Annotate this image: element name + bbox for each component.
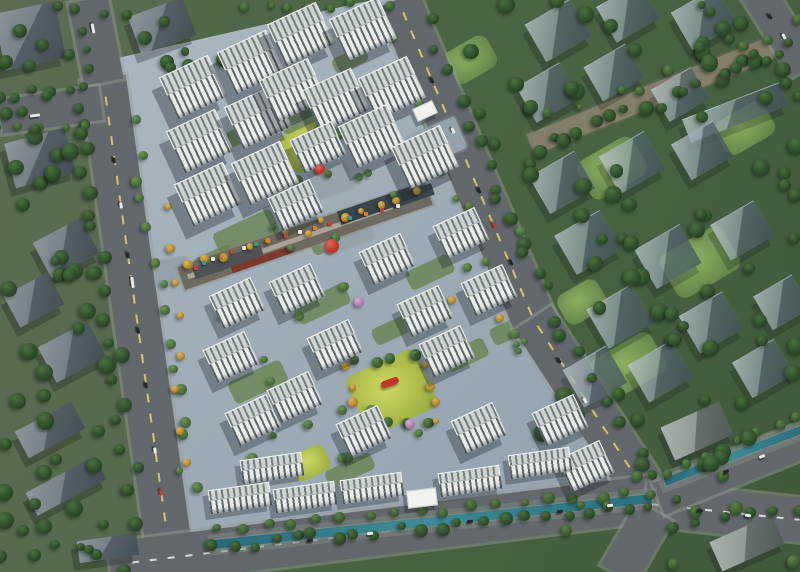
tree-dark (334, 532, 346, 544)
tree-dark (66, 500, 83, 517)
tree-dark (17, 198, 30, 211)
tree-dark (500, 512, 513, 525)
tree-dark (788, 137, 800, 155)
tree-dark (100, 285, 111, 296)
tree-dark (779, 179, 791, 191)
car (607, 503, 613, 507)
market-stall (266, 239, 270, 243)
tree-dark (430, 45, 438, 53)
market-stall (254, 242, 258, 246)
tree-dark (74, 103, 84, 113)
tree-dark (657, 103, 667, 113)
tree-dark (0, 107, 13, 120)
tree-dark (37, 39, 49, 51)
tree-dark (551, 0, 564, 8)
tree-site (515, 348, 521, 354)
tree-dark (700, 395, 710, 405)
tree-mid (763, 35, 773, 45)
tree-dark (98, 356, 116, 374)
tree-dark (18, 525, 29, 536)
tree-dark (34, 176, 48, 190)
tree-yellow (348, 397, 357, 406)
tree-mid (646, 490, 656, 500)
tree-dark (458, 95, 472, 109)
tree-dark (648, 470, 657, 479)
tree-dark (476, 135, 487, 146)
tree-dark (29, 549, 41, 561)
market-stall (211, 257, 215, 261)
tree-dark (30, 124, 41, 135)
tree-dark (668, 333, 682, 347)
tree-dark (524, 100, 538, 114)
tree-dark (428, 13, 439, 24)
tree-dark (775, 50, 784, 59)
tree-dark (749, 49, 759, 59)
tree-dark (570, 127, 583, 140)
tree-dark (623, 269, 640, 286)
tree-dark (762, 56, 772, 66)
tree-site (260, 356, 268, 364)
tree-dark (701, 54, 719, 72)
context-building (732, 339, 794, 399)
tree-dark (794, 505, 800, 517)
car (307, 538, 313, 542)
tree-site (169, 365, 178, 374)
tree-yellow (183, 459, 191, 467)
tree-yellow (247, 243, 253, 249)
tree-site (339, 282, 349, 292)
tree-dark (37, 412, 54, 429)
tree-dark (20, 343, 37, 360)
market-stall (284, 234, 288, 238)
tree-dark (632, 413, 646, 427)
tree-site (338, 405, 348, 415)
tree-dark (129, 517, 143, 531)
tree-dark (614, 416, 626, 428)
tree-dark (97, 313, 110, 326)
tree-dark (517, 247, 528, 258)
tree-dark (464, 121, 475, 132)
tree-dark (610, 164, 624, 178)
car (697, 508, 703, 512)
tree-dark (578, 6, 594, 22)
tree-dark (789, 233, 800, 244)
tree-mid (730, 501, 744, 515)
tree-dark (785, 365, 800, 381)
tree-site (132, 115, 140, 123)
tree-dark (629, 43, 643, 57)
tree-mid (63, 124, 70, 131)
market-stall (364, 212, 368, 216)
tree-dark (593, 301, 606, 314)
red-sphere-sculpture (315, 164, 325, 174)
tree-site (294, 311, 304, 321)
tree-mid (682, 459, 692, 469)
tree-mid (793, 14, 800, 25)
tree-dark (443, 64, 454, 75)
market-stall (328, 222, 332, 226)
tree-dark (673, 495, 682, 504)
car (745, 513, 751, 517)
tree-mid (410, 349, 421, 360)
tree-dark (93, 425, 105, 437)
tree-dark (73, 322, 85, 334)
car (367, 531, 373, 535)
tree-mid (269, 2, 276, 9)
tree-dark (541, 511, 551, 521)
tree-dark (54, 1, 63, 10)
tree-dark (753, 159, 770, 176)
tree-mid (334, 512, 345, 523)
market-stall (242, 246, 246, 250)
tree-dark (205, 539, 216, 550)
tree-mid (240, 2, 250, 12)
tree-dark (75, 127, 88, 140)
tree-dark (565, 81, 579, 95)
tree-dark (788, 337, 800, 355)
tree-dark (757, 335, 768, 346)
tree-dark (13, 24, 27, 38)
tree-dark (667, 522, 679, 534)
tree-dark (498, 0, 514, 13)
tree-dark (479, 516, 489, 526)
tree-yellow (172, 279, 179, 286)
tree-mid (543, 492, 555, 504)
tree-site (131, 176, 142, 187)
tree-dark (294, 530, 304, 540)
tree-site (270, 432, 277, 439)
tree-dark (181, 47, 190, 56)
market-stall (194, 266, 198, 270)
tree-dark (624, 235, 640, 251)
tree-dark (603, 109, 616, 122)
tree-mid (738, 41, 749, 52)
tree-dark (605, 186, 622, 203)
tree-mid (522, 499, 529, 506)
tree-mid (311, 514, 321, 524)
tree-yellow (433, 418, 439, 424)
tree-dark (644, 502, 652, 510)
car (557, 509, 563, 513)
tree-dark (118, 398, 132, 412)
tree-dark (623, 198, 636, 211)
tree-yellow (305, 230, 312, 237)
tree-dark (463, 44, 478, 59)
market-stall (348, 216, 352, 220)
tree-dark (553, 329, 566, 342)
market-stall (396, 204, 400, 208)
tree-site (482, 257, 491, 266)
tree-dark (475, 108, 486, 119)
tree-site (521, 338, 527, 344)
tree-dark (79, 303, 95, 319)
tree-dark (736, 396, 751, 411)
tree-dark (730, 62, 742, 74)
tree-dark (574, 346, 585, 357)
tree-site (161, 280, 169, 288)
tree-dark (51, 256, 61, 266)
tree-yellow (166, 244, 175, 253)
tree-dark (584, 508, 594, 518)
tree-site (338, 453, 348, 463)
tree-mid (791, 412, 800, 422)
tree-dark (794, 91, 800, 101)
tree-mid (620, 487, 629, 496)
tree-dark (754, 314, 767, 327)
tree-dark (781, 77, 792, 88)
tree-mid (561, 525, 572, 536)
car (467, 519, 473, 523)
market-stall (298, 230, 302, 234)
tree-mid (491, 499, 500, 508)
tree-dark (87, 458, 102, 473)
red-sphere-sculpture (325, 239, 339, 253)
tree-dark (613, 388, 626, 401)
tree-dark (678, 321, 689, 332)
entrance-gate (406, 487, 438, 509)
tree-site (516, 226, 526, 236)
tree-dark (701, 284, 715, 298)
tree-dark (111, 415, 121, 425)
tree-mid (787, 555, 800, 568)
tree-dark (79, 82, 88, 91)
aerial-masterplan-rendering (0, 0, 800, 572)
tree-dark (565, 511, 575, 521)
tree-yellow (496, 314, 504, 322)
market-stall (380, 208, 384, 212)
tree-yellow (448, 296, 456, 304)
tree-yellow (341, 362, 350, 371)
tree-dark (398, 522, 406, 530)
tree-dark (625, 504, 636, 515)
tree-yellow (358, 208, 364, 214)
tree-dark (85, 221, 95, 231)
tree-dark (544, 281, 553, 290)
tree-dark (42, 91, 52, 101)
tree-dark (588, 256, 603, 271)
tree-site (287, 244, 294, 251)
tree-mid (367, 512, 376, 521)
tree-dark (64, 49, 75, 60)
tree-dark (37, 465, 52, 480)
tree-pink (354, 297, 364, 307)
tree-mid (663, 65, 674, 76)
tree-mid (543, 108, 552, 117)
tree-dark (523, 167, 539, 183)
tree-dark (490, 138, 501, 149)
tree-yellow (426, 382, 435, 391)
tree-mid (618, 86, 626, 94)
tree-mid (391, 508, 399, 516)
tree-mid (466, 499, 477, 510)
tree-dark (533, 145, 547, 159)
tree-mid (286, 519, 296, 529)
market-stall (202, 261, 206, 265)
tree-dark (251, 543, 259, 551)
tree-dark (488, 160, 498, 170)
tree-dark (509, 77, 524, 92)
tree-dark (81, 142, 95, 156)
market-stall (313, 226, 317, 230)
market-stall (230, 250, 234, 254)
tree-site (151, 258, 161, 268)
market-stall (220, 254, 224, 258)
tree-mid (668, 558, 679, 569)
tree-dark (10, 393, 26, 409)
tree-mid (632, 471, 642, 481)
tree-dark (10, 93, 20, 103)
tree-dark (490, 194, 500, 204)
tree-site (176, 467, 183, 474)
tree-dark (639, 101, 654, 116)
tree-dark (691, 79, 700, 88)
tree-mid (238, 524, 248, 534)
tree-site (303, 420, 313, 430)
tree-dark (79, 27, 87, 35)
tree-yellow (318, 217, 324, 223)
tree-dark (679, 87, 688, 96)
tree-yellow (177, 352, 185, 360)
tree-dark (789, 188, 800, 202)
tree-mid (385, 353, 395, 363)
tree-dark (665, 307, 679, 321)
tree-mid (385, 1, 395, 11)
tree-dark (691, 518, 699, 526)
tree-dark (721, 512, 730, 521)
tree-mid (265, 519, 274, 528)
tree-dark (734, 16, 749, 31)
tree-dark (504, 212, 518, 226)
tree-dark (591, 115, 603, 127)
tree-dark (85, 64, 94, 73)
tree-dark (107, 374, 118, 385)
tree-mid (577, 104, 583, 110)
tree-site (510, 329, 520, 339)
tree-dark (549, 316, 561, 328)
tree-dark (437, 523, 449, 535)
tree-site (192, 482, 203, 493)
tree-dark (702, 340, 719, 357)
tree-dark (575, 208, 590, 223)
tree-yellow (177, 312, 183, 318)
tree-dark (535, 268, 546, 279)
tree-dark (115, 444, 125, 454)
tree-yellow (413, 187, 421, 195)
tree-dark (779, 167, 791, 179)
tree-mid (438, 508, 448, 518)
tree-dark (36, 364, 53, 381)
tree-site (160, 305, 170, 315)
tree-dark (744, 263, 755, 274)
tree-site (513, 341, 520, 348)
tree-dark (67, 86, 75, 94)
tree-dark (8, 160, 23, 175)
tree-yellow (165, 203, 172, 210)
tree-dark (519, 510, 530, 521)
tree-dark (99, 520, 108, 529)
tree-dark (635, 457, 650, 472)
tree-yellow (432, 398, 440, 406)
tree-mid (283, 3, 292, 12)
tree-pink (405, 419, 415, 429)
tree-dark (114, 347, 130, 363)
tree-dark (159, 16, 170, 27)
